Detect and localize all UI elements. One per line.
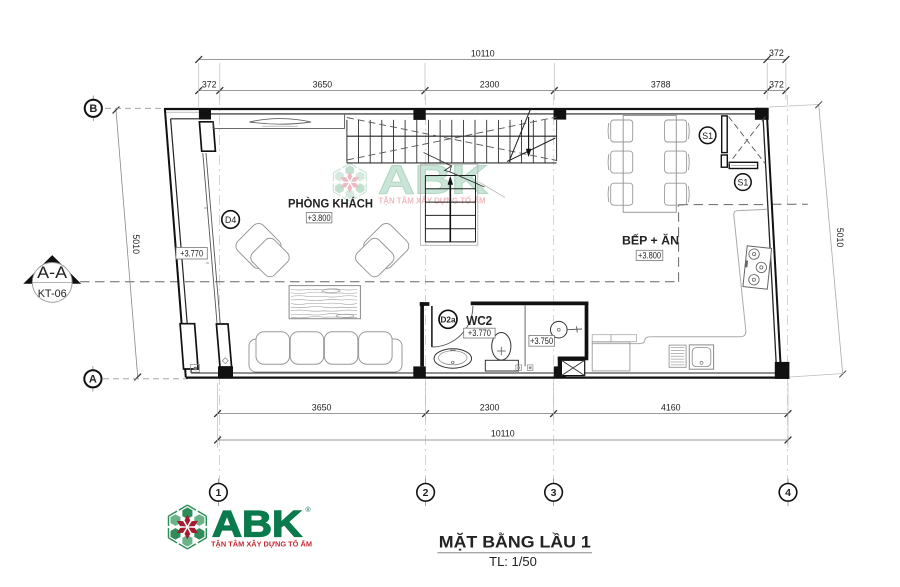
- svg-text:A: A: [89, 374, 97, 386]
- svg-text:ABK: ABK: [212, 504, 302, 545]
- svg-text:D4: D4: [225, 215, 236, 225]
- svg-text:5010: 5010: [131, 234, 141, 254]
- svg-text:S1: S1: [702, 131, 713, 141]
- svg-text:372: 372: [202, 79, 217, 89]
- svg-text:3788: 3788: [651, 79, 671, 89]
- svg-text:4: 4: [785, 487, 791, 499]
- svg-text:3650: 3650: [312, 402, 332, 412]
- svg-text:+3.800: +3.800: [638, 250, 661, 261]
- svg-text:TẬN TÂM XÂY DỰNG TỔ ẤM: TẬN TÂM XÂY DỰNG TỔ ẤM: [379, 195, 486, 206]
- svg-text:+3.750: +3.750: [530, 335, 553, 346]
- svg-text:®: ®: [306, 506, 312, 514]
- svg-text:TL: 1/50: TL: 1/50: [489, 554, 537, 569]
- svg-text:+3.770: +3.770: [180, 247, 203, 258]
- svg-text:D2a: D2a: [440, 316, 455, 325]
- svg-text:372: 372: [769, 48, 784, 58]
- svg-text:B: B: [89, 103, 97, 115]
- svg-text:372: 372: [769, 79, 784, 89]
- svg-text:3: 3: [551, 487, 557, 499]
- svg-text:+3.770: +3.770: [468, 327, 491, 338]
- svg-text:3650: 3650: [313, 79, 333, 89]
- svg-text:2300: 2300: [480, 402, 500, 412]
- svg-text:S1: S1: [738, 178, 749, 188]
- svg-text:2: 2: [423, 487, 429, 499]
- svg-text:WC2: WC2: [466, 314, 492, 328]
- svg-text:4160: 4160: [661, 402, 681, 412]
- svg-text:MẶT BẰNG LẦU 1: MẶT BẰNG LẦU 1: [439, 533, 591, 552]
- svg-text:TẬN TÂM XÂY DỰNG TỔ ẤM: TẬN TÂM XÂY DỰNG TỔ ẤM: [211, 539, 312, 549]
- svg-text:2300: 2300: [480, 79, 500, 89]
- svg-text:5010: 5010: [835, 228, 845, 248]
- svg-text:KT-06: KT-06: [38, 288, 67, 300]
- svg-text:10110: 10110: [471, 49, 495, 59]
- svg-text:+3.800: +3.800: [308, 212, 331, 223]
- svg-text:BẾP + ĂN: BẾP + ĂN: [622, 232, 679, 247]
- svg-text:1: 1: [215, 487, 221, 499]
- svg-text:A-A: A-A: [37, 264, 67, 282]
- svg-text:10110: 10110: [491, 429, 515, 439]
- svg-text:PHÒNG KHÁCH: PHÒNG KHÁCH: [288, 197, 373, 211]
